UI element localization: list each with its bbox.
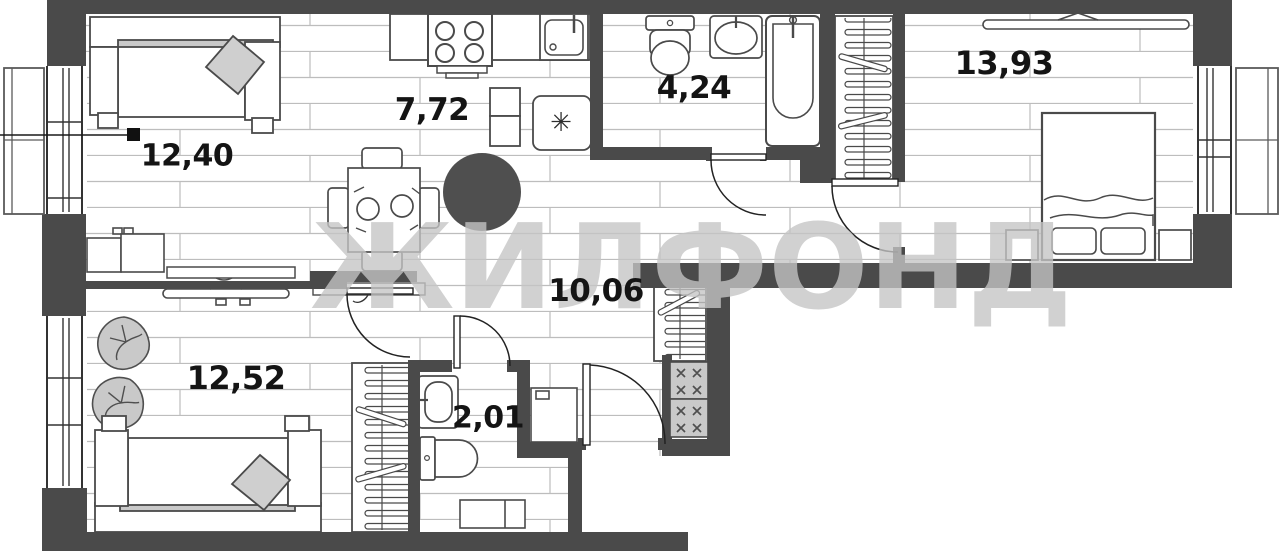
room-label-hallway: 10,06 — [548, 273, 644, 309]
sofa-living — [90, 17, 280, 133]
room-label-bathroom: 4,24 — [657, 70, 732, 106]
wc-toilet — [420, 437, 478, 480]
floor-plan-page: ЖИЛФОНД ✳ 12,40 7,72 4,24 13,93 10,06 12… — [0, 0, 1280, 551]
balcony-left — [4, 68, 44, 214]
snowflake-icon: ✳ — [550, 108, 572, 138]
window-living — [42, 66, 87, 214]
wardrobe-bedroom2 — [352, 363, 413, 532]
vent-shafts — [670, 362, 708, 437]
kitchen-sink — [540, 14, 588, 60]
window-bedroom — [1193, 66, 1233, 214]
wc-cabinet — [460, 500, 525, 528]
bathroom-sink — [710, 16, 762, 58]
room-label-bedroom: 13,93 — [955, 44, 1054, 82]
closet-entry — [835, 16, 893, 182]
room-label-wc: 2,01 — [452, 401, 524, 436]
washing-machine — [531, 388, 577, 442]
bathtub — [766, 16, 820, 146]
room-label-kitchen: 7,72 — [395, 92, 470, 128]
room-label-bedroom2: 12,52 — [187, 359, 286, 397]
stove — [428, 14, 492, 78]
room-label-living: 12,40 — [141, 139, 233, 174]
bathroom-toilet — [646, 16, 694, 75]
window-bedroom2 — [42, 316, 87, 488]
shelf — [167, 267, 295, 280]
balcony-right — [1236, 68, 1278, 214]
